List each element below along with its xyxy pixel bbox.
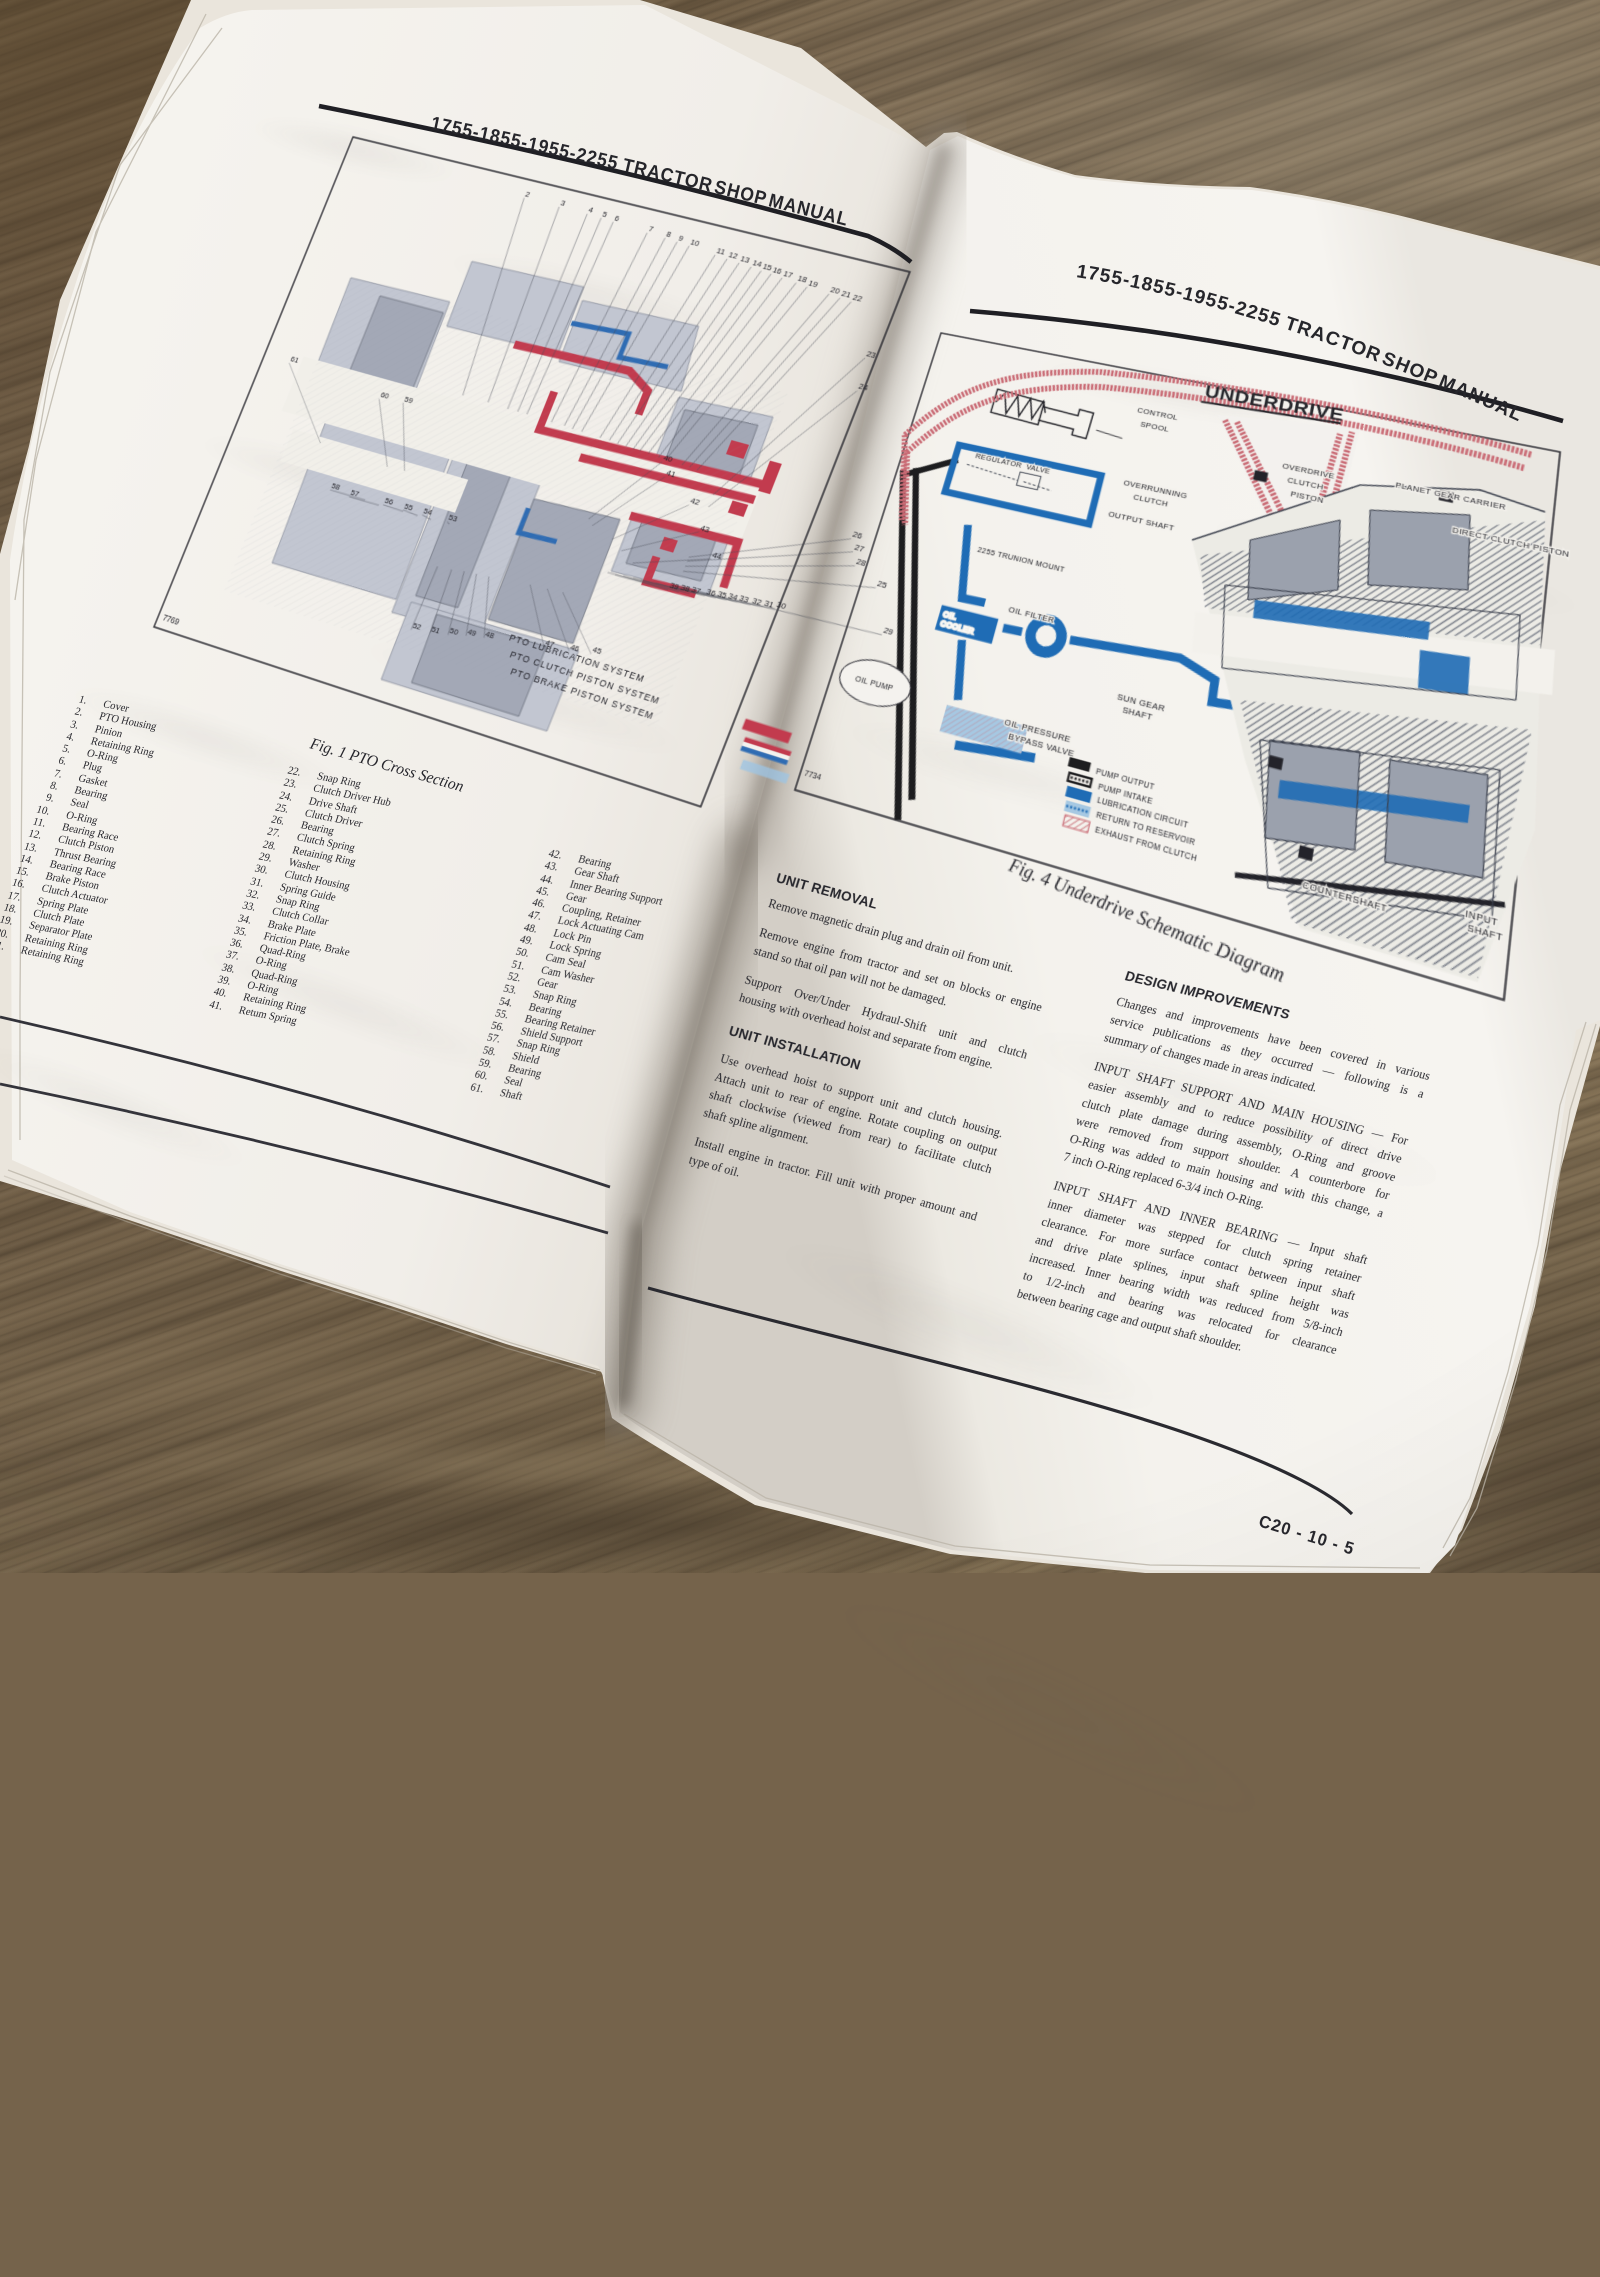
- svg-text:10: 10: [689, 237, 701, 249]
- svg-text:2255 TRUNION MOUNT: 2255 TRUNION MOUNT: [976, 546, 1065, 575]
- svg-text:21: 21: [840, 288, 853, 300]
- svg-text:24: 24: [857, 381, 870, 393]
- svg-text:3: 3: [559, 198, 567, 208]
- svg-text:OUTPUT SHAFT: OUTPUT SHAFT: [1107, 510, 1175, 533]
- svg-text:18: 18: [796, 273, 809, 285]
- svg-text:61: 61: [289, 354, 300, 365]
- svg-text:17: 17: [782, 268, 795, 280]
- svg-text:6: 6: [613, 213, 621, 223]
- svg-text:7769: 7769: [161, 613, 181, 627]
- svg-text:19: 19: [807, 277, 820, 289]
- svg-text:20: 20: [829, 284, 842, 296]
- svg-text:7734: 7734: [803, 768, 823, 782]
- svg-text:32: 32: [751, 595, 764, 608]
- svg-text:13: 13: [739, 253, 751, 265]
- svg-text:5: 5: [601, 209, 609, 219]
- svg-text:11: 11: [715, 245, 727, 257]
- svg-text:22: 22: [851, 292, 864, 304]
- svg-text:4: 4: [587, 205, 595, 215]
- svg-text:12: 12: [727, 249, 739, 261]
- svg-text:8: 8: [665, 229, 673, 240]
- svg-text:33: 33: [738, 592, 751, 605]
- svg-text:SPOOL: SPOOL: [1139, 420, 1169, 434]
- svg-text:9: 9: [677, 232, 685, 243]
- svg-text:16: 16: [771, 264, 783, 276]
- svg-text:31: 31: [763, 597, 776, 610]
- svg-text:7: 7: [647, 224, 655, 235]
- svg-text:2: 2: [524, 189, 532, 199]
